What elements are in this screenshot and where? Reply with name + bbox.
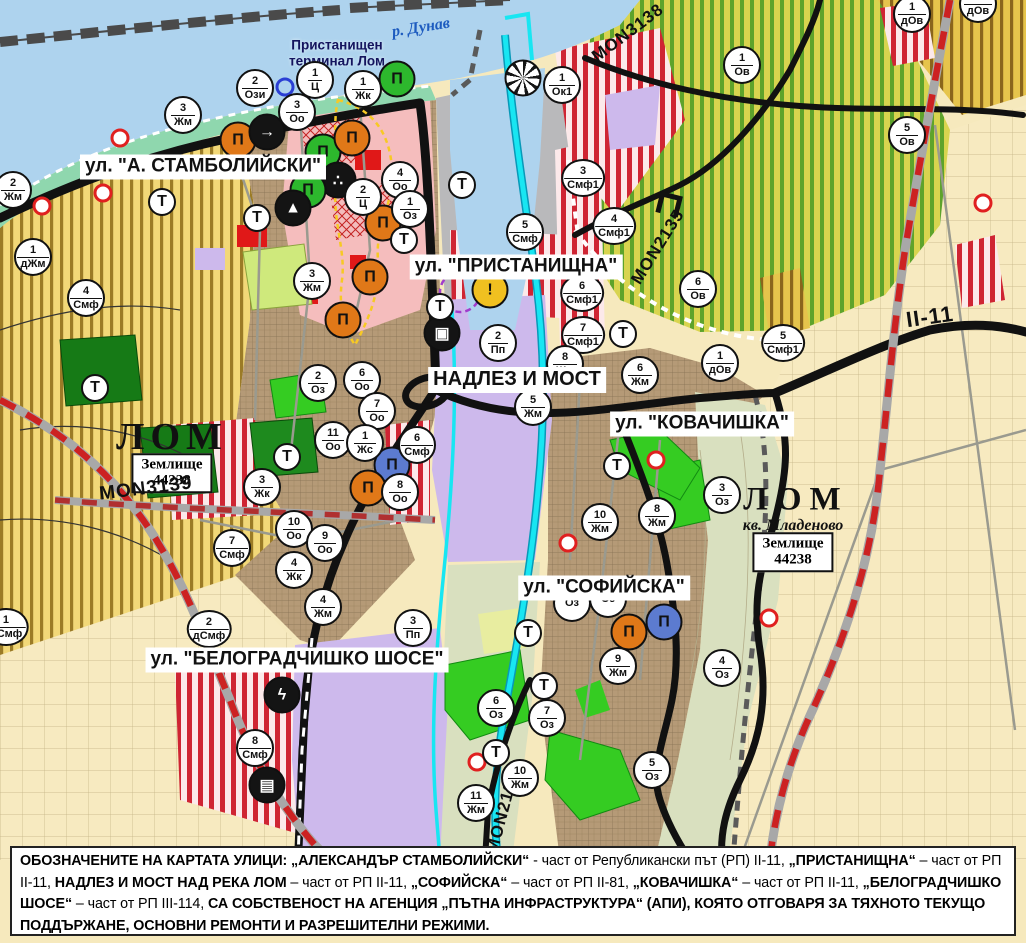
zone-marker-Оо: 8Оо bbox=[381, 473, 419, 511]
zone-marker-Жм: 4Жм bbox=[304, 588, 342, 626]
street-label-0: ул. "А. СТАМБОЛИЙСКИ" bbox=[80, 155, 326, 180]
street-label-5: ул. "БЕЛОГРАДЧИШКО ШОСЕ" bbox=[146, 648, 449, 673]
monument-icon: Π bbox=[334, 120, 371, 157]
zone-marker-Смф: 7Смф bbox=[213, 529, 251, 567]
red-dot-marker bbox=[111, 129, 130, 148]
zone-marker-Жм: 11Жм bbox=[457, 784, 495, 822]
transport-marker: Т bbox=[390, 226, 418, 254]
cave-icon: ▲ bbox=[275, 190, 312, 227]
zone-marker-Жм: 8Жм bbox=[638, 497, 676, 535]
power-substation-icon: ϟ bbox=[264, 677, 301, 714]
street-label-1: ул. "ПРИСТАНИЩНА" bbox=[410, 255, 623, 280]
zone-marker-Смф: 5Смф bbox=[506, 213, 544, 251]
zone-marker-Смф: 8Смф bbox=[236, 729, 274, 767]
zone-marker-Оз: 2Оз bbox=[299, 364, 337, 402]
red-dot-marker bbox=[33, 197, 52, 216]
transport-marker: Т bbox=[148, 188, 176, 216]
transport-marker: Т bbox=[482, 739, 510, 767]
zone-marker-Жм: 10Жм bbox=[581, 503, 619, 541]
street-label-3: ул. "КОВАЧИШКА" bbox=[610, 412, 794, 437]
zone-marker-Жм: 10Жм bbox=[501, 759, 539, 797]
zone-marker-дОв: 1дОв bbox=[701, 344, 739, 382]
zone-marker-Оо: 9Оо bbox=[306, 524, 344, 562]
city-label: ЛОМ bbox=[743, 482, 848, 519]
zone-marker-Смф1: 5Смф1 bbox=[761, 324, 805, 362]
sunburst-monument-icon bbox=[505, 60, 542, 97]
transport-marker: Т bbox=[426, 293, 454, 321]
zone-marker-Смф: 4Смф bbox=[67, 279, 105, 317]
zone-marker-Оз: 7Оз bbox=[528, 699, 566, 737]
transport-marker: Т bbox=[243, 204, 271, 232]
railway-station-icon: ▤ bbox=[249, 767, 286, 804]
transport-marker: Т bbox=[609, 320, 637, 348]
zone-marker-Жм: 6Жм bbox=[621, 356, 659, 394]
red-dot-marker bbox=[974, 194, 993, 213]
zone-marker-Жм: 3Жм bbox=[293, 262, 331, 300]
zone-marker-Жк: 4Жк bbox=[275, 551, 313, 589]
zone-marker-Оз: 6Оз bbox=[477, 689, 515, 727]
zoning-map-canvas[interactable]: ОБОЗНАЧЕНИТЕ НА КАРТАТА УЛИЦИ: „АЛЕКСАНД… bbox=[0, 0, 1026, 943]
zone-marker-Смф1: 3Смф1 bbox=[561, 159, 605, 197]
transport-marker: Т bbox=[81, 374, 109, 402]
zone-marker-дСмф: 2дСмф bbox=[187, 610, 232, 648]
zone-marker-дЖм: 1дЖм bbox=[14, 238, 52, 276]
transport-marker: Т bbox=[273, 443, 301, 471]
zone-marker-Жм: 3Жм bbox=[164, 96, 202, 134]
zone-marker-Оз: 5Оз bbox=[633, 751, 671, 789]
zone-marker-Оз: 3Оз bbox=[703, 476, 741, 514]
street-label-2: НАДЛЕЗ И МОСТ bbox=[428, 367, 606, 393]
zone-marker-Жм: 9Жм bbox=[599, 647, 637, 685]
zone-marker-Ов: 1Ов bbox=[723, 46, 761, 84]
zone-marker-Смф1: 4Смф1 bbox=[592, 207, 636, 245]
transport-marker: Т bbox=[530, 672, 558, 700]
zone-marker-Пп: 2Пп bbox=[479, 324, 517, 362]
transport-marker: Т bbox=[448, 171, 476, 199]
transport-marker: Т bbox=[514, 619, 542, 647]
zone-marker-Оз: 4Оз bbox=[703, 649, 741, 687]
zone-marker-Оо: 3Оо bbox=[278, 93, 316, 131]
land-register-box: Землище44238 bbox=[752, 532, 833, 572]
red-dot-marker bbox=[647, 451, 666, 470]
zone-marker-Жс: 1Жс bbox=[346, 424, 384, 462]
zone-marker-Ов: 5Ов bbox=[888, 116, 926, 154]
street-label-4: ул. "СОФИЙСКА" bbox=[518, 576, 690, 601]
monument-icon: Π bbox=[379, 61, 416, 98]
red-dot-marker bbox=[760, 609, 779, 628]
monument-icon: Π bbox=[611, 614, 648, 651]
red-dot-marker bbox=[94, 184, 113, 203]
zone-marker-Жм: 5Жм bbox=[514, 388, 552, 426]
zone-marker-Жк: 3Жк bbox=[243, 468, 281, 506]
monument-icon: Π bbox=[352, 259, 389, 296]
transport-marker: Т bbox=[603, 452, 631, 480]
zone-marker-Смф: 6Смф bbox=[398, 426, 436, 464]
zone-marker-Жк: 1Жк bbox=[344, 70, 382, 108]
monument-icon: Π bbox=[325, 302, 362, 339]
zone-marker-Ок1: 1Ок1 bbox=[543, 66, 581, 104]
zone-marker-Ц: 2Ц bbox=[344, 178, 382, 216]
map-footer-note: ОБОЗНАЧЕНИТЕ НА КАРТАТА УЛИЦИ: „АЛЕКСАНД… bbox=[10, 846, 1016, 936]
zone-marker-Ов: 6Ов bbox=[679, 270, 717, 308]
zone-marker-Ози: 2Ози bbox=[236, 69, 274, 107]
museum-icon: Π bbox=[646, 604, 683, 641]
zone-marker-Пп: 3Пп bbox=[394, 609, 432, 647]
zone-marker-Смф1: 6Смф1 bbox=[560, 274, 604, 312]
zone-marker-Оз: 1Оз bbox=[391, 190, 429, 228]
red-dot-marker bbox=[559, 534, 578, 553]
